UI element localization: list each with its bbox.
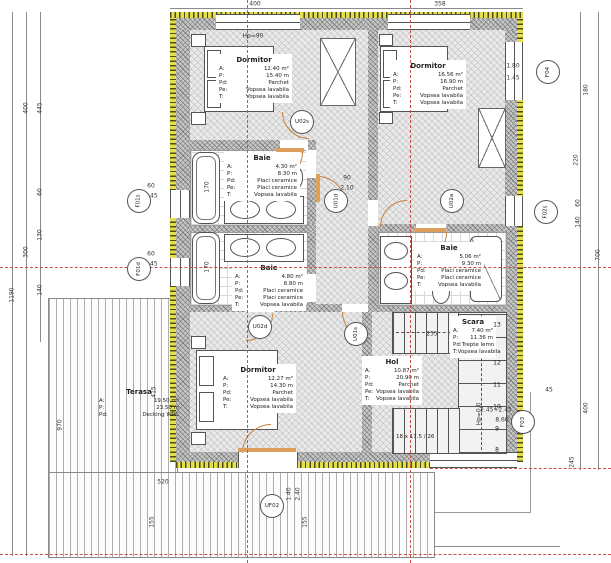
pillow	[199, 356, 214, 386]
spec-value: Vopsea lavabila	[420, 100, 463, 107]
spec-label: Pd:	[227, 178, 236, 185]
dimension-label: 1.45	[144, 193, 157, 200]
dimension-label: 60	[147, 251, 155, 258]
opening-tag-f02s: F02s	[534, 200, 558, 224]
spec-value: 15.40 m	[266, 73, 289, 80]
spec-value: Vopsea lavabila	[420, 93, 463, 100]
spec-label: T:	[219, 94, 224, 101]
sink	[384, 272, 408, 290]
spec-value: 16.90 m	[440, 79, 463, 86]
spec-label: A:	[99, 398, 105, 405]
opening-tag-f04: F04	[536, 60, 560, 84]
spec-label: A:	[393, 72, 399, 79]
opening-tag-label: F01d	[136, 262, 142, 276]
room-info-dormitor-nv: Dormitor A:12.40 m² P:15.40 m Pd:Parchet…	[216, 54, 292, 103]
dimension-label: 180	[583, 84, 590, 95]
sink	[384, 242, 408, 260]
spec-value: Vopsea lavabila	[254, 192, 297, 199]
spec-value: Parchet	[268, 80, 289, 87]
spec-label: T:	[417, 282, 422, 289]
room-name: Scara	[453, 318, 493, 326]
spec-value: Vopsea lavabila	[376, 396, 419, 403]
opening-tag-label: F01s	[136, 194, 142, 207]
sink	[230, 238, 260, 257]
spec-value: Parchet	[398, 382, 419, 389]
door-frame-u01d	[316, 174, 320, 202]
spec-value: Parchet	[442, 86, 463, 93]
centerline-vertical-left	[247, 0, 248, 563]
spec-label: Pe:	[219, 87, 227, 94]
stair-flight-bottom	[392, 408, 460, 454]
spec-label: Pd:	[453, 342, 462, 349]
dimension-label: 220	[573, 154, 580, 165]
spec-label: Pd:	[219, 80, 228, 87]
room-name: Baie	[235, 264, 303, 272]
dim-line-left-3	[40, 12, 41, 342]
spec-value: Vopsea lavabila	[246, 94, 289, 101]
window-f04	[505, 42, 523, 100]
spec-label: P:	[365, 375, 370, 382]
spec-label: P:	[99, 405, 104, 412]
gap-u02a	[368, 200, 378, 226]
terrace-deck-bottom	[48, 472, 435, 558]
window-f01s	[170, 190, 190, 218]
spec-label: T:	[223, 404, 228, 411]
spec-label: Pd:	[223, 390, 232, 397]
spec-value: Placi ceramice	[441, 268, 481, 275]
spec-value: Vopsea lavabila	[260, 302, 303, 309]
room-info-dormitor-sv: Dormitor A:12.27 m² P:14.30 m Pd:Parchet…	[220, 364, 296, 413]
spec-value: Placi ceramice	[257, 185, 297, 192]
spec-label: Pd:	[99, 412, 108, 419]
floor-plan-drawing: 18 x 17.5 / 26 Dormitor A:12.40 m² P:15.…	[0, 0, 611, 563]
spec-label: Pe:	[365, 389, 373, 396]
spec-value: 8.80 m	[284, 281, 303, 288]
opening-tag-label: F04	[545, 67, 551, 77]
room-info-dormitor-ne: Dormitor A:16.56 m² P:16.90 m Pd:Parchet…	[390, 60, 466, 109]
spec-label: Pd:	[417, 268, 426, 275]
spec-label: T:	[235, 302, 240, 309]
spec-label: Pe:	[223, 397, 231, 404]
pillow	[199, 392, 214, 422]
window-f03	[430, 452, 517, 468]
room-info-baie-m: Baie A:4.80 m² P:8.80 m Pd:Placi ceramic…	[232, 262, 306, 311]
gap-baie-m	[306, 274, 316, 302]
spec-value: Vopsea lavabila	[458, 349, 501, 356]
window-f01d	[170, 258, 190, 286]
spec-label: Pe:	[227, 185, 235, 192]
wall-partition-p6	[368, 30, 378, 312]
room-info-scara: Scara A:7.40 m² P:11.36 m Pd:Trepte lemn…	[450, 316, 496, 358]
spec-label: A:	[227, 164, 233, 171]
spec-value: Placi ceramice	[257, 178, 297, 185]
room-name: Dormitor	[393, 62, 463, 70]
spec-label: T:	[227, 192, 232, 199]
spec-value: 10.87 m²	[394, 368, 419, 375]
spec-value: 16.56 m²	[438, 72, 463, 79]
centerline-horizontal-lowright	[430, 468, 611, 469]
room-name: Baie	[227, 154, 297, 162]
dimension-label: 45	[545, 387, 553, 394]
spec-value: Trepte lemn	[462, 342, 495, 349]
stair-walkline-top	[396, 332, 456, 333]
room-info-baie-s: Baie A:4.30 m² P:8.30 m Pd:Placi ceramic…	[224, 152, 300, 201]
dim-line-right-1	[580, 12, 581, 470]
spec-value: 4.80 m²	[281, 274, 303, 281]
dimension-label: 245	[569, 456, 576, 467]
nightstand	[379, 34, 393, 46]
stair-note: 18 x 17.5 / 26	[396, 434, 434, 440]
nightstand	[191, 112, 206, 125]
spec-label: Pd:	[393, 86, 402, 93]
spec-label: P:	[453, 335, 458, 342]
room-name: Dormitor	[223, 366, 293, 374]
spec-label: P:	[393, 79, 398, 86]
nightstand	[191, 336, 206, 349]
nightstand	[191, 34, 206, 47]
room-info-terasa: Terasa A:19.50 m² P:23.50 m Pd:Decking W…	[96, 386, 182, 421]
spec-value: 11.36 m	[470, 335, 493, 342]
opening-tag-label: F02s	[543, 205, 549, 218]
spec-label: A:	[453, 328, 459, 335]
nightstand	[379, 112, 393, 124]
spec-value: 14.30 m	[270, 383, 293, 390]
room-name: Baie	[417, 244, 481, 252]
gap-baie-s	[306, 150, 316, 178]
bathtub	[192, 152, 220, 224]
spec-label: A:	[219, 66, 225, 73]
dim-line-right-2	[598, 12, 599, 470]
dim-line-left-2	[26, 12, 27, 556]
bathtub	[192, 232, 220, 304]
dim-line-top	[170, 8, 523, 9]
room-info-hol: Hol A:10.87 m² P:20.90 m Pd:Parchet Pe:V…	[362, 356, 422, 405]
nightstand	[191, 432, 206, 445]
dimension-label: 60	[147, 183, 155, 190]
spec-value: 7.40 m²	[471, 328, 493, 335]
spec-value: Vopsea lavabila	[250, 404, 293, 411]
exterior-edge-horizontal	[435, 512, 531, 513]
dimension-label: 358	[434, 1, 445, 8]
spec-value: Vopsea lavabila	[376, 389, 419, 396]
spec-value: Decking WPC	[142, 412, 179, 419]
sink	[266, 238, 296, 257]
dim-line-left-1	[12, 12, 13, 556]
window-f02s	[505, 196, 523, 226]
spec-label: A:	[365, 368, 371, 375]
room-name: Terasa	[99, 388, 179, 396]
spec-value: Placi ceramice	[263, 288, 303, 295]
wardrobe	[320, 38, 356, 106]
dimension-label: 400	[249, 1, 260, 8]
door-frame-baie-d	[414, 228, 446, 232]
spec-label: Pe:	[393, 93, 401, 100]
spec-label: A:	[417, 254, 423, 261]
spec-value: Placi ceramice	[441, 275, 481, 282]
spec-label: P:	[223, 383, 228, 390]
spec-value: Vopsea lavabila	[250, 397, 293, 404]
spec-label: T:	[393, 100, 398, 107]
spec-label: P:	[235, 281, 240, 288]
spec-label: Pd:	[235, 288, 244, 295]
dimension-label: 400	[583, 402, 590, 413]
spec-label: A:	[235, 274, 241, 281]
spec-value: 4.30 m²	[275, 164, 297, 171]
spec-value: Placi ceramice	[263, 295, 303, 302]
centerline-horizontal-bottom	[0, 554, 611, 555]
centerline-horizontal-mid	[0, 267, 611, 268]
sink	[230, 200, 260, 219]
spec-label: A:	[223, 376, 229, 383]
opening-tag-f01d: F01d	[127, 257, 151, 281]
window-top-left	[216, 14, 300, 30]
window-top-right	[388, 14, 470, 30]
spec-value: 12.27 m²	[268, 376, 293, 383]
spec-value: 8.30 m	[278, 171, 297, 178]
centerline-vertical-right	[410, 0, 411, 563]
room-name: Dormitor	[219, 56, 289, 64]
spec-label: P:	[219, 73, 224, 80]
spec-value: 12.40 m²	[264, 66, 289, 73]
exterior-edge-vertical	[530, 392, 531, 512]
opening-tag-f01s: F01s	[127, 189, 151, 213]
spec-label: T:	[365, 396, 370, 403]
gap-u01s	[342, 304, 368, 312]
spec-label: P:	[227, 171, 232, 178]
spec-value: 20.90 m	[396, 375, 419, 382]
spec-label: Pe:	[235, 295, 243, 302]
wardrobe	[478, 108, 506, 168]
spec-label: Pd:	[365, 382, 374, 389]
spec-value: 23.50 m	[156, 405, 179, 412]
spec-value: Parchet	[272, 390, 293, 397]
spec-value: Vopsea lavabila	[246, 87, 289, 94]
spec-label: Pe:	[417, 275, 425, 282]
spec-value: 5.06 m²	[459, 254, 481, 261]
spec-value: Vopsea lavabila	[438, 282, 481, 289]
sink	[266, 200, 296, 219]
spec-value: 19.50 m²	[154, 398, 179, 405]
